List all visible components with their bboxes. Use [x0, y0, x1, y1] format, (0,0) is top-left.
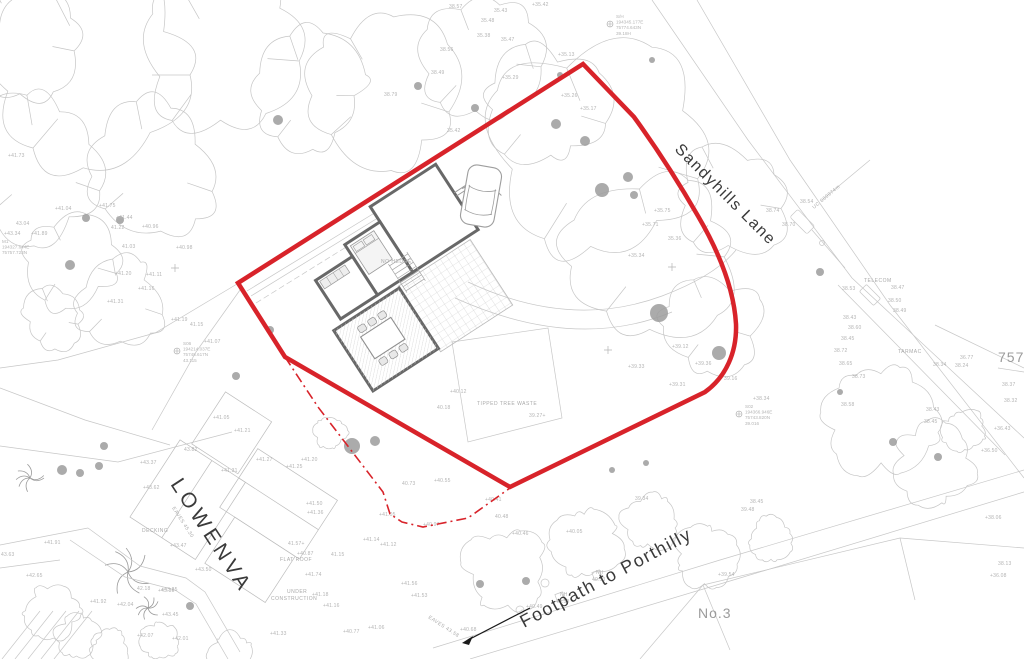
- tree-canopy-outline: [0, 0, 196, 176]
- survey-point-label: 38.65: [839, 361, 853, 367]
- survey-point-label: 38.43: [843, 315, 857, 321]
- survey-point-label: +43.50: [195, 567, 212, 573]
- tree-canopy-outline: [143, 0, 305, 133]
- survey-station-marker: [174, 348, 180, 354]
- survey-point-label: +40.46: [512, 531, 529, 537]
- palm-tree-symbol: [136, 597, 158, 620]
- survey-station-marker: [736, 411, 742, 417]
- survey-point-label: +39.31: [669, 382, 686, 388]
- survey-point-label: +39.12: [672, 344, 689, 350]
- survey-point-label: 38.45: [841, 336, 855, 342]
- neighbour-plot-label: No.3: [698, 605, 732, 621]
- survey-point-label: 35.47: [501, 37, 515, 43]
- survey-point-label: 40.48: [495, 514, 509, 520]
- survey-point-label: +43.37: [140, 460, 157, 466]
- survey-point-label: +41.50: [306, 501, 323, 507]
- survey-point-label: 41.57+: [288, 541, 305, 547]
- survey-point-label: +42.04: [117, 602, 134, 608]
- survey-station-label: 194214.037E: [183, 347, 210, 352]
- survey-point-label: +41.31: [107, 299, 124, 305]
- tree-trunk-dot: [471, 104, 479, 112]
- tree-canopy-outline: [0, 0, 83, 103]
- survey-point-label: 38.37: [1002, 382, 1016, 388]
- survey-point-label: +41.36: [307, 510, 324, 516]
- tree-trunk-dot: [57, 465, 67, 475]
- survey-station-label: 43.115: [183, 358, 197, 363]
- survey-point-label: +43.62: [143, 485, 160, 491]
- proposed-building-plan: [288, 141, 558, 394]
- survey-point-label: 40.18: [437, 405, 451, 411]
- survey-point-label: +40.77: [343, 629, 360, 635]
- lane-edge: [652, 0, 1024, 438]
- survey-point-label: 38.24: [955, 363, 969, 369]
- survey-point-label: +41.19: [171, 317, 188, 323]
- survey-point-label: +41.07: [204, 339, 221, 345]
- survey-point-label: 38.56: [440, 47, 454, 53]
- tree-canopy-outline: [87, 92, 216, 237]
- survey-point-label: +41.33: [270, 631, 287, 637]
- tree-trunk-dot: [609, 467, 615, 473]
- car-plan: [456, 163, 506, 229]
- survey-point-label: +40.05: [566, 529, 583, 535]
- survey-point-label: 38.49: [893, 308, 907, 314]
- survey-point-label: 43.04: [16, 221, 30, 227]
- survey-point-label: 38.49: [431, 70, 445, 76]
- survey-point-label: +41.05: [379, 512, 396, 518]
- tree-trunk-dot: [65, 260, 75, 270]
- survey-point-label: +41.74: [305, 572, 322, 578]
- survey-point-label: 39.48: [741, 507, 755, 513]
- survey-station-label: 75757.723N: [2, 250, 27, 255]
- tree-trunk-dot: [649, 57, 655, 63]
- survey-point-label: 41.15: [331, 552, 345, 558]
- survey-point-label: +42.07: [137, 633, 154, 639]
- site-feature-label: TARMAC: [898, 349, 922, 355]
- main-labels: Sandyhills Lane LOWENVA Footpath to Port…: [166, 141, 1024, 645]
- survey-point-label: +41.75: [99, 203, 116, 209]
- survey-point-label: +38.34: [753, 396, 770, 402]
- survey-point-label: +40.96: [142, 224, 159, 230]
- survey-station-label: S02: [745, 404, 754, 409]
- tree-trunk-dot: [522, 577, 530, 585]
- survey-point-label: +39.36: [695, 361, 712, 367]
- survey-point-label: +35.34: [628, 253, 645, 259]
- survey-point-label: 38.32: [1004, 398, 1018, 404]
- survey-point-label: +43.35: [158, 588, 175, 594]
- survey-station-label: S06: [183, 341, 192, 346]
- survey-point-label: +36.43: [994, 426, 1011, 432]
- survey-point-label: +40.12: [450, 389, 467, 395]
- survey-point-label: +41.20: [301, 457, 318, 463]
- tree-trunk-dot: [934, 453, 942, 461]
- utility-stay-line: [812, 160, 870, 268]
- survey-point-label: +41.20: [115, 271, 132, 277]
- survey-point-label: 35.48: [481, 18, 495, 24]
- tree-trunk-dot: [889, 438, 897, 446]
- palm-tree-symbol: [16, 464, 44, 492]
- tree-trunk-dot: [712, 346, 726, 360]
- manhole-cover: [541, 579, 549, 587]
- tree-trunk-dot: [370, 436, 380, 446]
- survey-point-label: 35.42: [447, 128, 461, 134]
- survey-point-label: 35.36: [668, 236, 682, 242]
- footpath-edge: [470, 492, 1024, 659]
- survey-station-label: M1: [2, 239, 9, 244]
- survey-point-label: +39.33: [628, 364, 645, 370]
- tree-trunk-dot: [232, 372, 240, 380]
- survey-point-label: 38.34: [933, 362, 947, 368]
- tree-trunk-dot: [816, 268, 824, 276]
- survey-point-label: 35.43: [494, 8, 508, 14]
- survey-point-label: +41.06: [368, 625, 385, 631]
- survey-point-label: 40.73: [402, 481, 416, 487]
- site-feature-label: NO HEDGE: [381, 259, 412, 265]
- tree-trunk-dot: [186, 602, 194, 610]
- bush-canopy-outline: [460, 530, 545, 612]
- bush-canopy-outline: [748, 514, 792, 561]
- site-feature-label: EAVES 43.58: [427, 615, 460, 639]
- survey-point-label: 39.16: [724, 376, 738, 382]
- survey-point-label: 38.43: [926, 407, 940, 413]
- bush-canopy-outline: [940, 409, 985, 452]
- survey-point-label: 38.50: [888, 298, 902, 304]
- survey-point-label: 43.82: [184, 447, 198, 453]
- survey-point-label: +41.73: [8, 153, 25, 159]
- tree-canopy-outline: [556, 171, 734, 337]
- survey-point-label: 38.45: [924, 419, 938, 425]
- survey-point-label: +42.65: [26, 573, 43, 579]
- site-feature-label: TIPPED TREE WASTE: [477, 401, 537, 407]
- tree-trunk-dot: [414, 82, 422, 90]
- survey-point-label: 38.45: [750, 499, 764, 505]
- survey-point-label: 39.27+: [529, 413, 546, 419]
- survey-station-label: 194327.644E: [2, 245, 29, 250]
- survey-point-label: +41.31: [221, 468, 238, 474]
- survey-point-label: 38.53: [842, 286, 856, 292]
- site-feature-label: CONSTRUCTION: [271, 596, 317, 602]
- survey-point-label: 36.77: [960, 355, 974, 361]
- tree-trunk-dot: [837, 389, 843, 395]
- property-label: LOWENVA: [166, 474, 257, 597]
- survey-point-label: +35.29: [502, 75, 519, 81]
- survey-point-label: +35.42: [532, 2, 549, 8]
- survey-point-label: +41.16: [138, 286, 155, 292]
- survey-point-label: +41.16: [323, 603, 340, 609]
- survey-point-label: +41.53: [411, 593, 428, 599]
- verge-line: [838, 285, 1005, 455]
- survey-point-label: 41.22: [111, 225, 125, 231]
- survey-point-label: +41.44: [116, 215, 133, 221]
- tree-trunk-dot: [580, 136, 590, 146]
- tree-trunk-dot: [100, 442, 108, 450]
- footpath-label: Footpath to Porthilly: [516, 524, 695, 632]
- tipped-waste-outline: [452, 328, 562, 442]
- survey-point-label: +35.13: [558, 52, 575, 58]
- plot-boundary: [640, 538, 1024, 659]
- survey-point-label: +43.47: [170, 543, 187, 549]
- survey-point-label: +41.05: [213, 415, 230, 421]
- base-linework: [0, 0, 1024, 659]
- survey-point-label: 38.13: [998, 561, 1012, 567]
- survey-point-label: 38.72: [834, 348, 848, 354]
- tree-canopy-outline: [21, 285, 84, 352]
- survey-point-label: 38.58: [841, 402, 855, 408]
- survey-point-label: +41.91: [44, 540, 61, 546]
- bush-canopy-outline: [313, 418, 349, 449]
- tree-trunk-dot: [630, 191, 638, 199]
- survey-point-label: 38.47: [891, 285, 905, 291]
- survey-point-label: +36.50: [981, 448, 998, 454]
- parcel-number-label: 757: [998, 349, 1024, 365]
- survey-station-label: 75743.820N: [745, 415, 770, 420]
- survey-station-marker: [607, 21, 613, 27]
- survey-point-label: +43.45: [162, 612, 179, 618]
- tree-trunk-dot: [82, 214, 90, 222]
- survey-point-label: 41.03: [122, 244, 136, 250]
- survey-point-label: +40.55: [434, 478, 451, 484]
- tree-trunk-dot: [650, 304, 668, 322]
- survey-annotations: 38.5735.43+35.4235.4835.3835.4738.5638.4…: [0, 2, 1018, 642]
- survey-station-label: 194345.177E: [616, 20, 643, 25]
- survey-station-label: 194366.946E: [745, 410, 772, 415]
- tree-trunk-dot: [595, 183, 609, 197]
- survey-station-label: 39.18H: [616, 31, 631, 36]
- survey-point-label: 41.15: [190, 322, 204, 328]
- survey-point-label: 38.54: [800, 199, 814, 205]
- survey-station-label: S/H: [616, 14, 624, 19]
- survey-station-label: 75774.643N: [616, 25, 641, 30]
- survey-point-label: 43.63: [1, 552, 15, 558]
- survey-point-label: 38.70: [782, 222, 796, 228]
- bush-canopy-outline: [893, 418, 978, 509]
- survey-point-label: 35.38: [477, 33, 491, 39]
- survey-point-label: +41.11: [146, 272, 162, 278]
- survey-point-label: +38.06: [985, 515, 1002, 521]
- survey-point-label: +41.25: [286, 464, 303, 470]
- survey-point-label: 38.74: [766, 208, 780, 214]
- survey-point-label: +35.26: [561, 93, 578, 99]
- survey-point-label: 38.60: [848, 325, 862, 331]
- survey-point-label: +41.56: [401, 581, 418, 587]
- survey-point-label: +41.27: [256, 457, 273, 463]
- site-feature-label: FLAT ROOF: [280, 557, 312, 563]
- tree-trunk-dot: [623, 172, 633, 182]
- survey-point-label: +41.89: [31, 231, 48, 237]
- survey-point-label: 38.57: [449, 4, 463, 10]
- tree-trunk-dot: [273, 115, 283, 125]
- survey-point-label: +41.14: [363, 537, 380, 543]
- tree-trunk-dot: [476, 580, 484, 588]
- survey-point-label: +41.21: [234, 428, 251, 434]
- survey-point-label: 42.18: [137, 586, 151, 592]
- survey-point-label: +35.17: [580, 106, 597, 112]
- survey-point-label: +41.04: [55, 206, 72, 212]
- survey-point-label: 38.79: [384, 92, 398, 98]
- survey-point-label: +40.68: [460, 627, 477, 633]
- survey-point-label: +35.75: [654, 208, 671, 214]
- survey-point-label: +41.12: [380, 542, 397, 548]
- survey-point-label: +42.01: [172, 636, 189, 642]
- tree-trunk-dot: [643, 460, 649, 466]
- vegetation-layer: [0, 0, 986, 659]
- survey-point-label: 39.34: [635, 496, 649, 502]
- survey-point-label: +39.54: [718, 572, 735, 578]
- tree-trunk-dot: [76, 469, 84, 477]
- survey-station-label: 39.016: [745, 421, 759, 426]
- survey-station-label: 75748.617N: [183, 352, 208, 357]
- site-feature-label: DECKING: [142, 528, 168, 534]
- survey-point-label: 38.73: [852, 374, 866, 380]
- tree-trunk-dot: [95, 462, 103, 470]
- site-feature-label: TELECOM: [864, 278, 892, 284]
- tree-trunk-dot: [551, 119, 561, 129]
- survey-point-label: +40.98: [176, 245, 193, 251]
- survey-point-label: +35.71: [642, 222, 659, 228]
- survey-point-label: +41.92: [90, 599, 107, 605]
- hedge-line: [998, 368, 1024, 372]
- site-feature-label: UNDER: [287, 589, 307, 595]
- survey-point-label: +36.08: [990, 573, 1007, 579]
- site-plan: 38.5735.43+35.4235.4835.3835.4738.5638.4…: [0, 0, 1024, 659]
- survey-point-label: +43.34: [4, 231, 21, 237]
- tree-canopy-outline: [483, 41, 614, 165]
- bush-canopy-outline: [89, 628, 128, 659]
